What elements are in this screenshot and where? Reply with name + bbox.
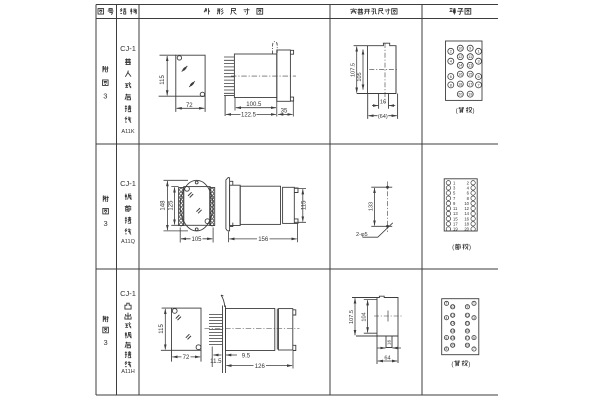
svg-text:2: 2 xyxy=(446,302,448,306)
svg-text:CJ-1: CJ-1 xyxy=(120,179,136,188)
svg-text:12: 12 xyxy=(451,313,455,317)
svg-text:4: 4 xyxy=(446,316,448,320)
svg-text:9: 9 xyxy=(469,47,471,51)
svg-text:CJ-1: CJ-1 xyxy=(120,289,136,298)
svg-text:19: 19 xyxy=(466,343,470,347)
svg-text:6: 6 xyxy=(446,336,448,340)
svg-text:12: 12 xyxy=(458,55,462,59)
svg-text:105: 105 xyxy=(357,72,363,81)
svg-text:115: 115 xyxy=(159,324,165,334)
svg-text:104: 104 xyxy=(361,312,367,321)
svg-text:CJ-1: CJ-1 xyxy=(120,44,136,53)
svg-text:100.5: 100.5 xyxy=(246,102,262,108)
svg-text:20: 20 xyxy=(458,93,462,97)
svg-text:3: 3 xyxy=(103,91,107,100)
svg-text:64: 64 xyxy=(384,355,390,361)
svg-text:13: 13 xyxy=(466,322,470,326)
svg-text:): ) xyxy=(472,108,474,115)
svg-text:107.5: 107.5 xyxy=(350,63,356,77)
svg-text:16: 16 xyxy=(458,73,462,77)
svg-text:5: 5 xyxy=(473,336,475,340)
svg-text:11.5: 11.5 xyxy=(210,359,222,365)
svg-text:125: 125 xyxy=(168,200,174,211)
svg-text:7: 7 xyxy=(477,83,479,87)
svg-text:15: 15 xyxy=(466,329,470,333)
svg-text:10: 10 xyxy=(458,47,462,51)
svg-text:8: 8 xyxy=(450,83,452,87)
svg-text:35: 35 xyxy=(281,109,288,115)
svg-text:11: 11 xyxy=(466,313,470,317)
svg-text:19: 19 xyxy=(468,93,472,97)
svg-text:148: 148 xyxy=(160,200,166,211)
svg-text:10: 10 xyxy=(451,305,455,309)
svg-text:A11Q: A11Q xyxy=(121,239,136,245)
svg-text:6: 6 xyxy=(450,75,452,79)
svg-text:17: 17 xyxy=(466,336,470,340)
svg-text:19: 19 xyxy=(453,227,458,232)
svg-text:14: 14 xyxy=(451,322,455,326)
svg-text:11: 11 xyxy=(468,55,472,59)
svg-text:3: 3 xyxy=(477,60,479,64)
svg-text:13: 13 xyxy=(468,64,472,68)
svg-text:9.5: 9.5 xyxy=(242,353,251,359)
svg-text:18: 18 xyxy=(458,82,462,86)
svg-text:): ) xyxy=(469,244,471,251)
svg-text:4: 4 xyxy=(450,60,452,64)
svg-text:15: 15 xyxy=(468,73,472,77)
svg-text:156: 156 xyxy=(258,237,269,243)
svg-text:18: 18 xyxy=(451,336,455,340)
svg-text:14: 14 xyxy=(458,64,462,68)
svg-text:105: 105 xyxy=(191,237,202,243)
svg-text:16: 16 xyxy=(380,99,386,105)
svg-text:A11H: A11H xyxy=(121,369,135,375)
svg-text:133: 133 xyxy=(369,202,375,211)
svg-text:5: 5 xyxy=(477,75,479,79)
svg-text:9: 9 xyxy=(466,305,468,309)
svg-text:1: 1 xyxy=(473,302,475,306)
svg-text:16: 16 xyxy=(451,329,455,333)
svg-text:72: 72 xyxy=(183,355,190,361)
svg-text:107.5: 107.5 xyxy=(349,310,355,324)
svg-text:3: 3 xyxy=(104,338,108,347)
svg-text:20: 20 xyxy=(464,227,469,232)
svg-text:72: 72 xyxy=(186,103,193,109)
svg-text:115: 115 xyxy=(160,75,166,85)
svg-text:122.5: 122.5 xyxy=(241,113,257,119)
svg-text:3: 3 xyxy=(104,219,108,228)
svg-text:126: 126 xyxy=(255,364,266,370)
svg-text:): ) xyxy=(468,361,470,368)
svg-text:1: 1 xyxy=(477,50,479,54)
svg-text:A11K: A11K xyxy=(121,129,135,135)
svg-text:3: 3 xyxy=(473,316,475,320)
svg-text:(64): (64) xyxy=(378,114,388,120)
svg-text:16: 16 xyxy=(387,340,392,346)
svg-text:7: 7 xyxy=(473,347,475,351)
svg-text:2: 2 xyxy=(450,50,452,54)
svg-text:20: 20 xyxy=(451,343,455,347)
svg-text:115: 115 xyxy=(302,200,308,210)
svg-text:8: 8 xyxy=(446,347,448,351)
svg-text:17: 17 xyxy=(468,82,472,86)
